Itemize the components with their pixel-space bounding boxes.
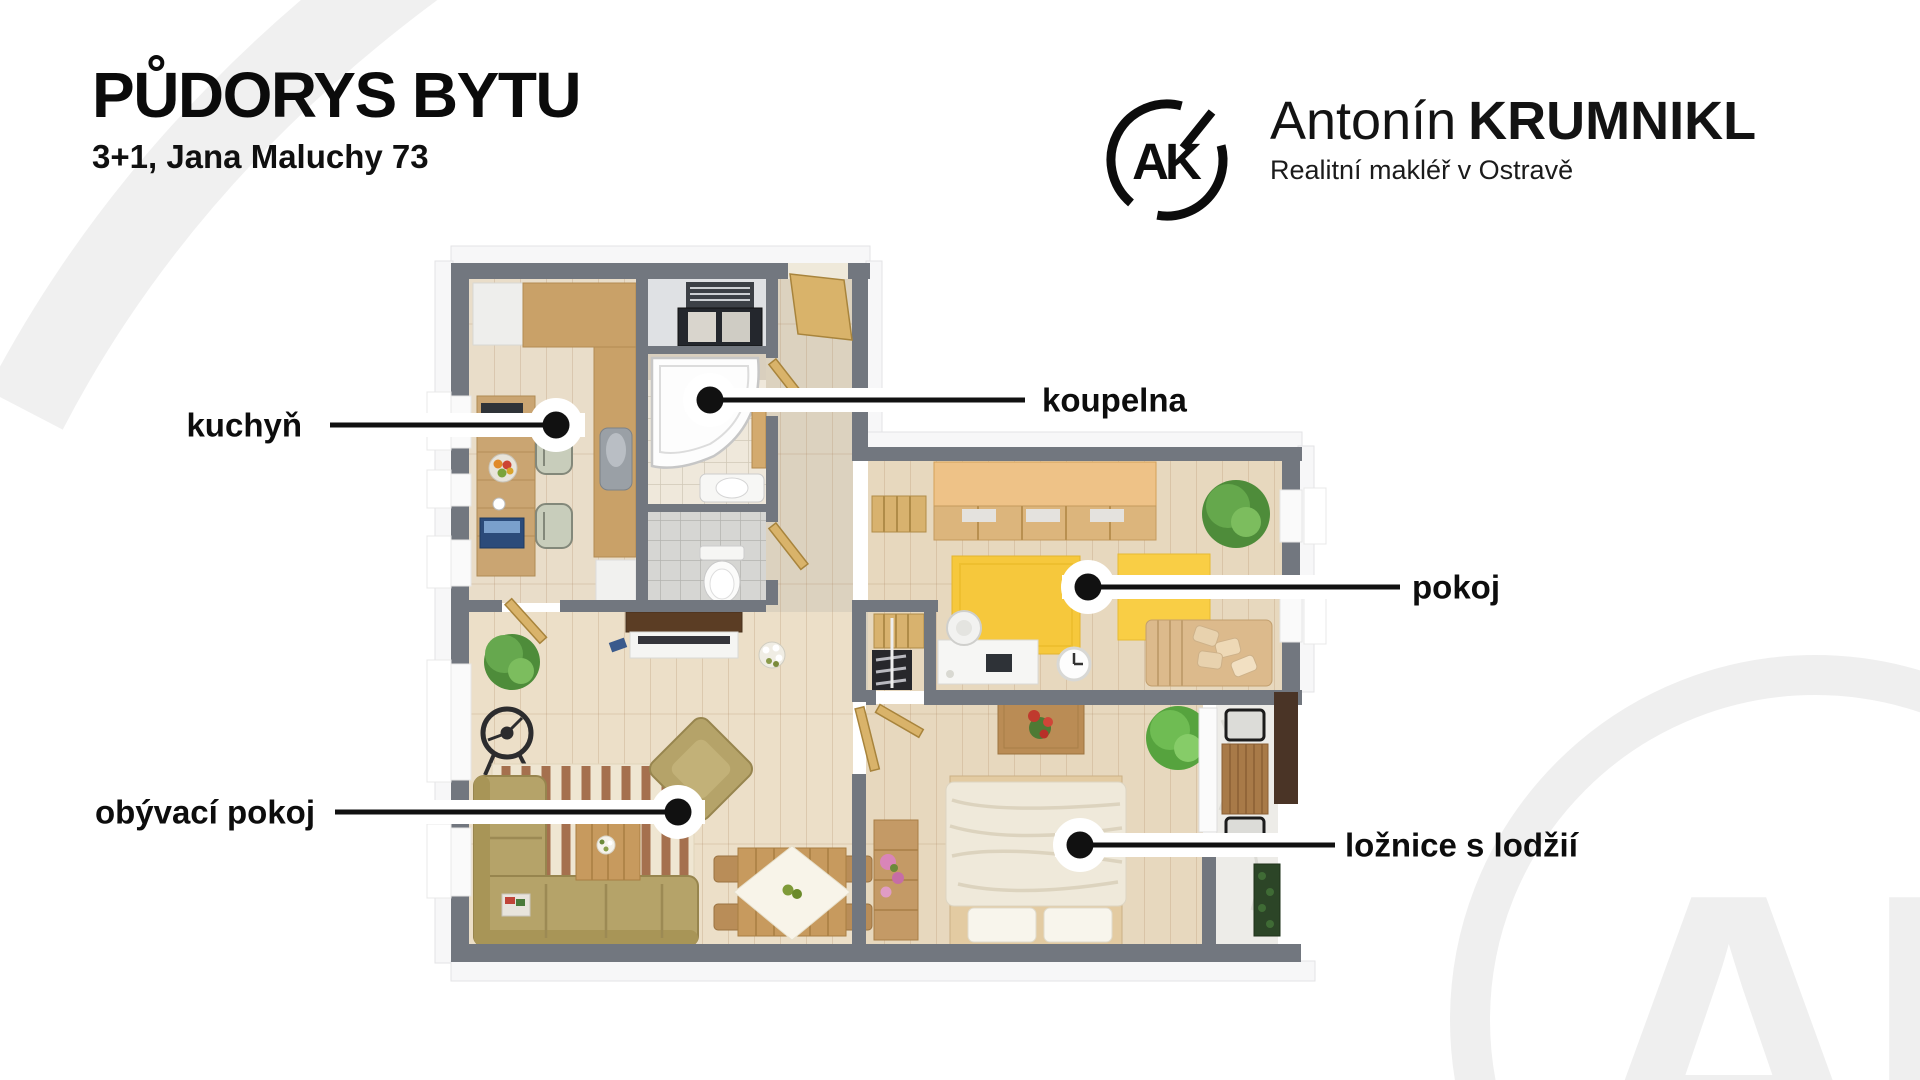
label-pokoj: pokoj [1412,571,1500,604]
watermark-ak-logo: AK [1470,675,1920,1080]
header: PŮDORYS BYTU 3+1, Jana Maluchy 73 [92,62,580,176]
daybed [1146,620,1272,686]
loggia-side-panel [1274,692,1298,804]
agent-first-name: Antonín [1270,91,1456,151]
planter [1254,864,1280,936]
balcony-table [1222,744,1268,814]
label-kuchyn: kuchyň [150,409,302,442]
agent-tagline: Realitní makléř v Ostravě [1270,155,1756,186]
wood-shelf [874,614,924,648]
agent-last-name: KRUMNIKL [1468,91,1756,151]
agent-name: AntonínKRUMNIKL [1270,94,1756,148]
desk [938,640,1038,684]
drying-rack [686,282,754,308]
dining-set [714,846,872,940]
wall-clock [1058,648,1090,680]
washing-machine [678,308,762,346]
coffee-table [576,818,640,880]
plant-living [484,634,540,690]
plant-pokoj [1202,480,1270,548]
label-loznice: ložnice s lodžií [1345,829,1578,862]
label-obyvaci-pokoj: obývací pokoj [70,796,315,829]
bench [874,820,918,940]
watermark-ak-monogram: AK [1570,803,1920,1080]
page-subtitle: 3+1, Jana Maluchy 73 [92,138,580,176]
wood-pallet-shelf [872,496,926,532]
page-title: PŮDORYS BYTU [92,62,580,129]
office-chair [947,611,981,645]
label-koupelna: koupelna [1042,384,1187,417]
wardrobe [934,462,1156,540]
loggia-door-window [1199,708,1217,832]
entry-door-leaf [790,274,852,340]
agent-block: AntonínKRUMNIKL Realitní makléř v Ostrav… [1270,94,1756,186]
bath-shelf [752,408,766,468]
flower-decor [759,642,785,668]
poster-canvas: AK [0,0,1920,1080]
agent-logo: AK [1096,86,1238,228]
bathroom-sink [700,474,764,502]
balcony-chair [1226,710,1264,740]
